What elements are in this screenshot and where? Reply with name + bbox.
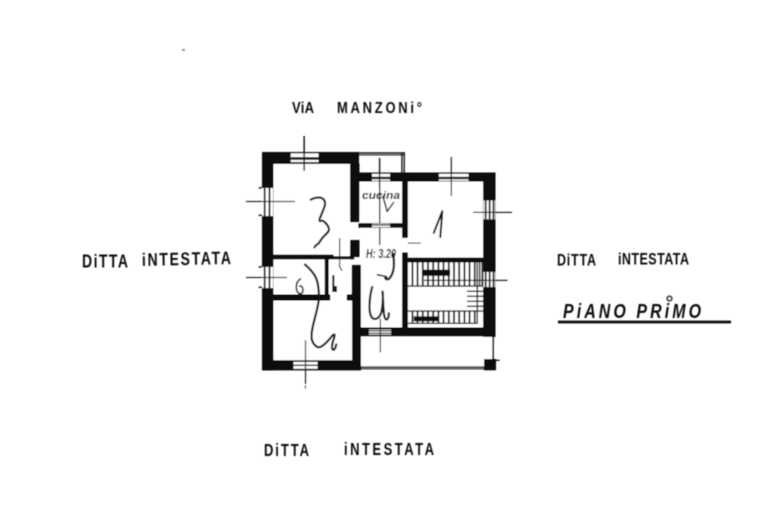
svg-text:ViA: ViA bbox=[292, 100, 314, 117]
svg-text:MANZONi°: MANZONi° bbox=[337, 100, 422, 117]
svg-text:iNTESTATA: iNTESTATA bbox=[618, 251, 689, 269]
svg-text:DiTTA: DiTTA bbox=[557, 252, 596, 270]
svg-text:iNTESTATA: iNTESTATA bbox=[344, 440, 434, 459]
svg-text:DiTTA: DiTTA bbox=[264, 441, 309, 460]
svg-text:DiTTA: DiTTA bbox=[82, 252, 128, 272]
svg-text:PiANO PRiMO: PiANO PRiMO bbox=[563, 299, 701, 322]
svg-text:cucina: cucina bbox=[362, 190, 400, 202]
svg-text:iNTESTATA: iNTESTATA bbox=[142, 248, 231, 270]
